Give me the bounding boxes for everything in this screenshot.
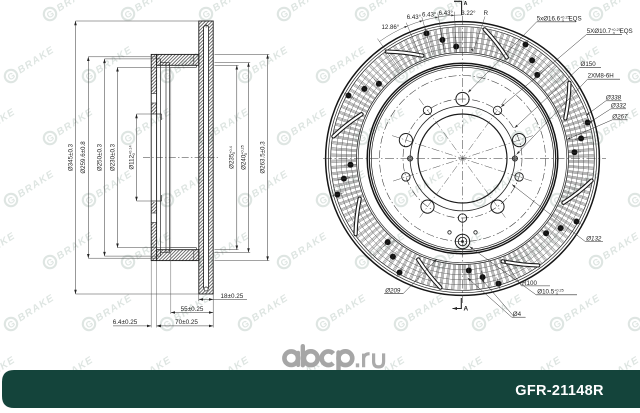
svg-text:Ø259.6±0.8: Ø259.6±0.8: [80, 141, 87, 174]
svg-text:Ø263.5±0.3: Ø263.5±0.3: [259, 141, 266, 174]
svg-text:Ø338: Ø338: [605, 95, 622, 102]
svg-text:GFR-21148R: GFR-21148R: [515, 383, 604, 399]
svg-text:6.43°: 6.43°: [439, 10, 454, 17]
svg-text:55±0.25: 55±0.25: [181, 306, 204, 313]
svg-text:Ø230±0.3: Ø230±0.3: [109, 143, 116, 171]
svg-text:3.22°: 3.22°: [461, 10, 476, 17]
svg-text:A: A: [464, 1, 468, 7]
svg-text:12.86°: 12.86°: [382, 24, 400, 31]
svg-text:Ø332: Ø332: [610, 103, 627, 110]
svg-text:Ø150: Ø150: [581, 61, 597, 68]
svg-text:6.4±0.25: 6.4±0.25: [113, 319, 138, 326]
svg-text:A: A: [464, 306, 469, 313]
svg-text:2XM8-6H: 2XM8-6H: [588, 73, 614, 80]
svg-text:Ø345±0.3: Ø345±0.3: [67, 143, 74, 171]
svg-text:18±0.25: 18±0.25: [221, 293, 244, 300]
svg-text:6.43°: 6.43°: [407, 14, 422, 21]
svg-text:Ø267: Ø267: [611, 114, 628, 121]
svg-text:6.43°: 6.43°: [422, 12, 437, 19]
svg-text:70±0.25: 70±0.25: [175, 319, 198, 326]
svg-text:Ø250±0.3: Ø250±0.3: [96, 143, 103, 171]
svg-text:R: R: [484, 10, 489, 17]
